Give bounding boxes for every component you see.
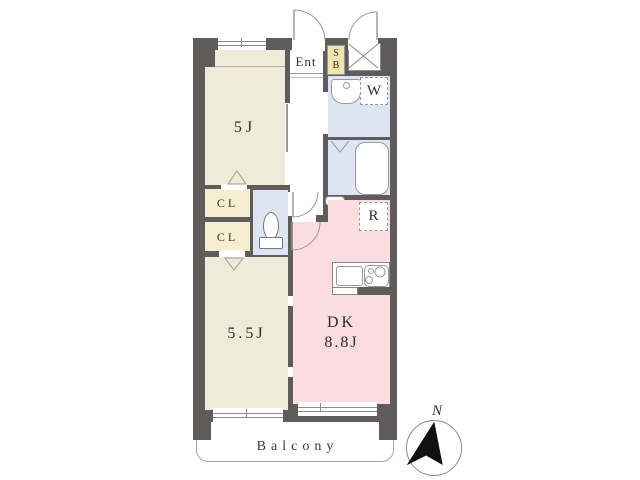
window-bottom-left-line2 [213, 417, 283, 418]
entrance-door-arc [294, 10, 325, 40]
counter-ledge-white [332, 287, 358, 295]
entrance-door-opening [292, 37, 325, 51]
stove-icon [364, 265, 389, 287]
entrance-label: Ent [288, 54, 324, 70]
compass-circle [406, 420, 462, 476]
compass-north-label: N [426, 402, 448, 420]
closet-top: CL [205, 189, 250, 217]
window-bottom-left-tick [246, 409, 247, 417]
entrance-step-line1 [290, 73, 323, 74]
window-bottom-right-tick [320, 403, 321, 411]
kitchen-sink-icon [336, 266, 363, 286]
toilet-bowl-icon [263, 212, 279, 240]
dk-door-opening [292, 213, 316, 222]
wall-stub-left [193, 420, 211, 440]
shoe-box: S B [327, 45, 345, 75]
balcony-label: Balcony [252, 439, 339, 461]
washing-machine-space: W [360, 77, 388, 105]
service-door-arc [349, 12, 377, 40]
refrigerator-space: R [359, 202, 388, 231]
room-label-5-5j: 5.5J [205, 325, 288, 343]
floor-plan-canvas: Balcony 5J Ent S B W CL [0, 0, 640, 480]
window-bottom-right-line1 [298, 407, 377, 408]
washroom-door-opening [323, 92, 328, 134]
service-door-opening [348, 37, 378, 50]
closet-strip-line [215, 66, 285, 67]
entrance-step-line2 [290, 77, 323, 78]
sliding-door-notch-1 [288, 296, 293, 306]
room-bedroom-5j [205, 50, 285, 185]
washing-machine-label: W [367, 83, 381, 100]
window-top-line2 [218, 45, 266, 46]
wall-notch-5j [205, 50, 215, 67]
toilet-tank-icon [259, 237, 283, 249]
window-top [218, 37, 266, 50]
bedroom-5j-sliding-door-leaf [286, 104, 288, 152]
shoe-box-letter-b: B [333, 60, 340, 72]
sliding-door-notch-2 [288, 367, 293, 377]
hallway [290, 50, 323, 215]
window-top-tick [241, 38, 242, 47]
balcony: Balcony [196, 420, 394, 462]
closet-top-label: CL [205, 194, 250, 212]
closet-bottom-label: CL [205, 228, 250, 246]
room-label-5j: 5J [205, 119, 285, 137]
room-dk-lower [293, 222, 328, 404]
washbasin-faucet-icon [343, 82, 350, 89]
window-top-line1 [218, 41, 266, 42]
shoe-box-letter-s: S [333, 48, 339, 60]
counter-ledge-dark [358, 287, 390, 295]
wall-stub-right [379, 400, 397, 440]
window-bottom-right-line2 [298, 411, 377, 412]
window-bottom-right [298, 402, 377, 416]
room-size-dk: 8.8J [293, 334, 390, 351]
window-bottom-left-line1 [213, 413, 283, 414]
bathtub-icon [355, 142, 389, 195]
window-bottom-left [213, 408, 283, 422]
refrigerator-label: R [368, 208, 378, 225]
room-label-dk: DK [293, 314, 390, 331]
closet-top-opening [221, 184, 247, 190]
closet-bottom: CL [205, 222, 250, 251]
